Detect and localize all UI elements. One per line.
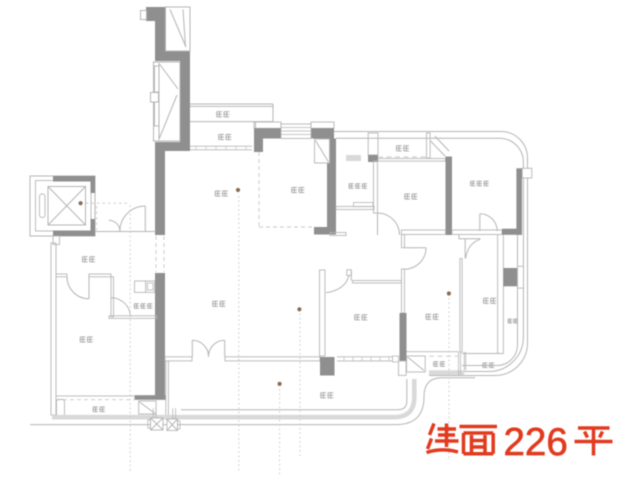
svg-text:226: 226 <box>504 421 568 464</box>
